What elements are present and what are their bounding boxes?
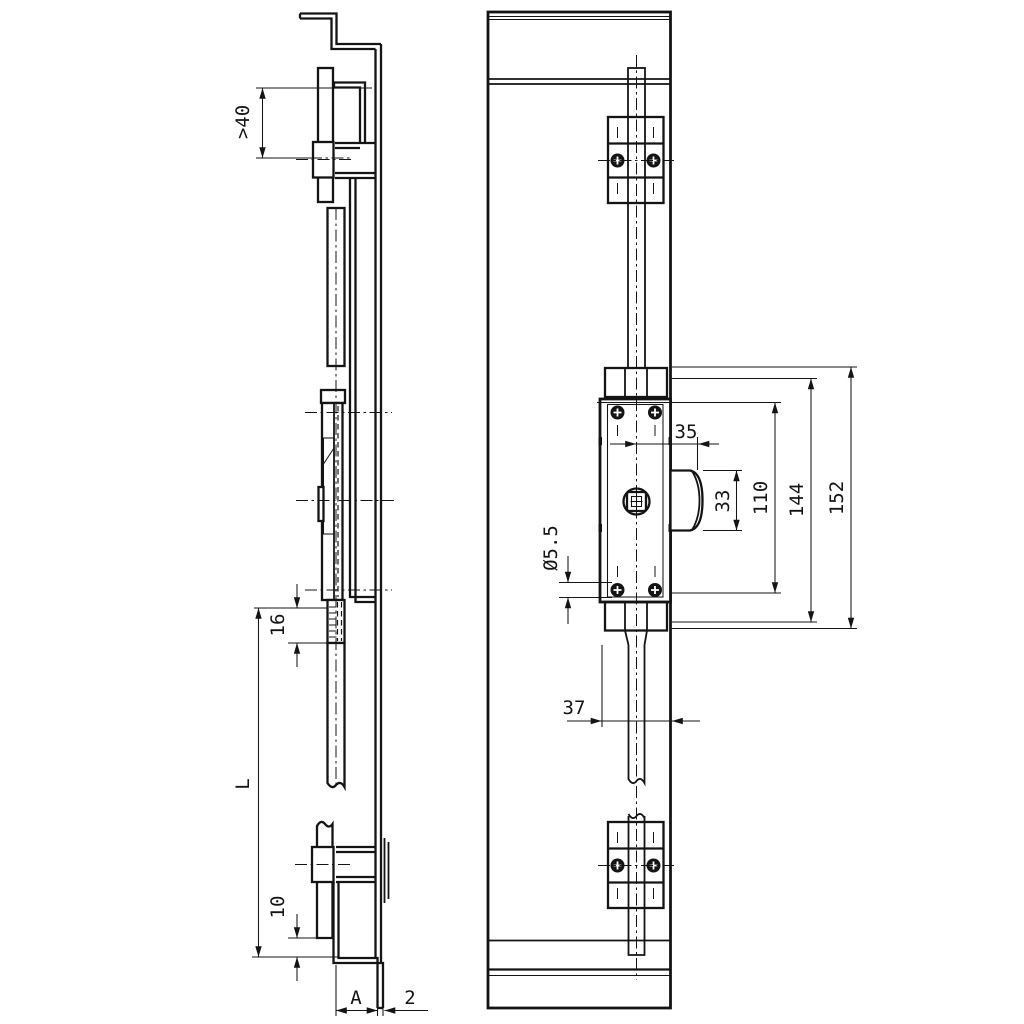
lock-technical-drawing: >40 16 L 10 A 2 35 33 110: [0, 0, 1024, 1024]
front-view: [488, 12, 703, 1008]
lock-case-side: [322, 403, 343, 600]
dim-label-hole-diameter: Ø5.5: [540, 525, 562, 571]
drawing-canvas: >40 16 L 10 A 2 35 33 110: [0, 0, 1024, 1024]
dim-label-flange-offset: >40: [232, 105, 254, 139]
case-tab: [599, 524, 603, 532]
dim-label-cam-height: 33: [712, 490, 734, 513]
dim-label-hook-width: A: [350, 987, 362, 1009]
dim-label-bracket-span: 144: [786, 483, 808, 517]
dim-label-bottom-offset: 10: [267, 896, 289, 919]
dim-label-rod-overlap: 16: [267, 614, 289, 637]
lock-case: [600, 399, 671, 602]
dim-label-sheet-thickness: 2: [404, 987, 415, 1009]
lock-clamp-side: [321, 390, 345, 403]
dim-label-overall-span: 152: [826, 481, 848, 515]
lock-cam: [671, 471, 703, 531]
dim-label-hole-spacing: 110: [750, 481, 772, 515]
dim-label-cam-offset: 35: [675, 421, 698, 443]
handle-boss-side: [319, 487, 324, 521]
dim-label-length: L: [232, 778, 254, 789]
dim-label-backset: 37: [563, 697, 586, 719]
case-tab: [599, 437, 603, 445]
